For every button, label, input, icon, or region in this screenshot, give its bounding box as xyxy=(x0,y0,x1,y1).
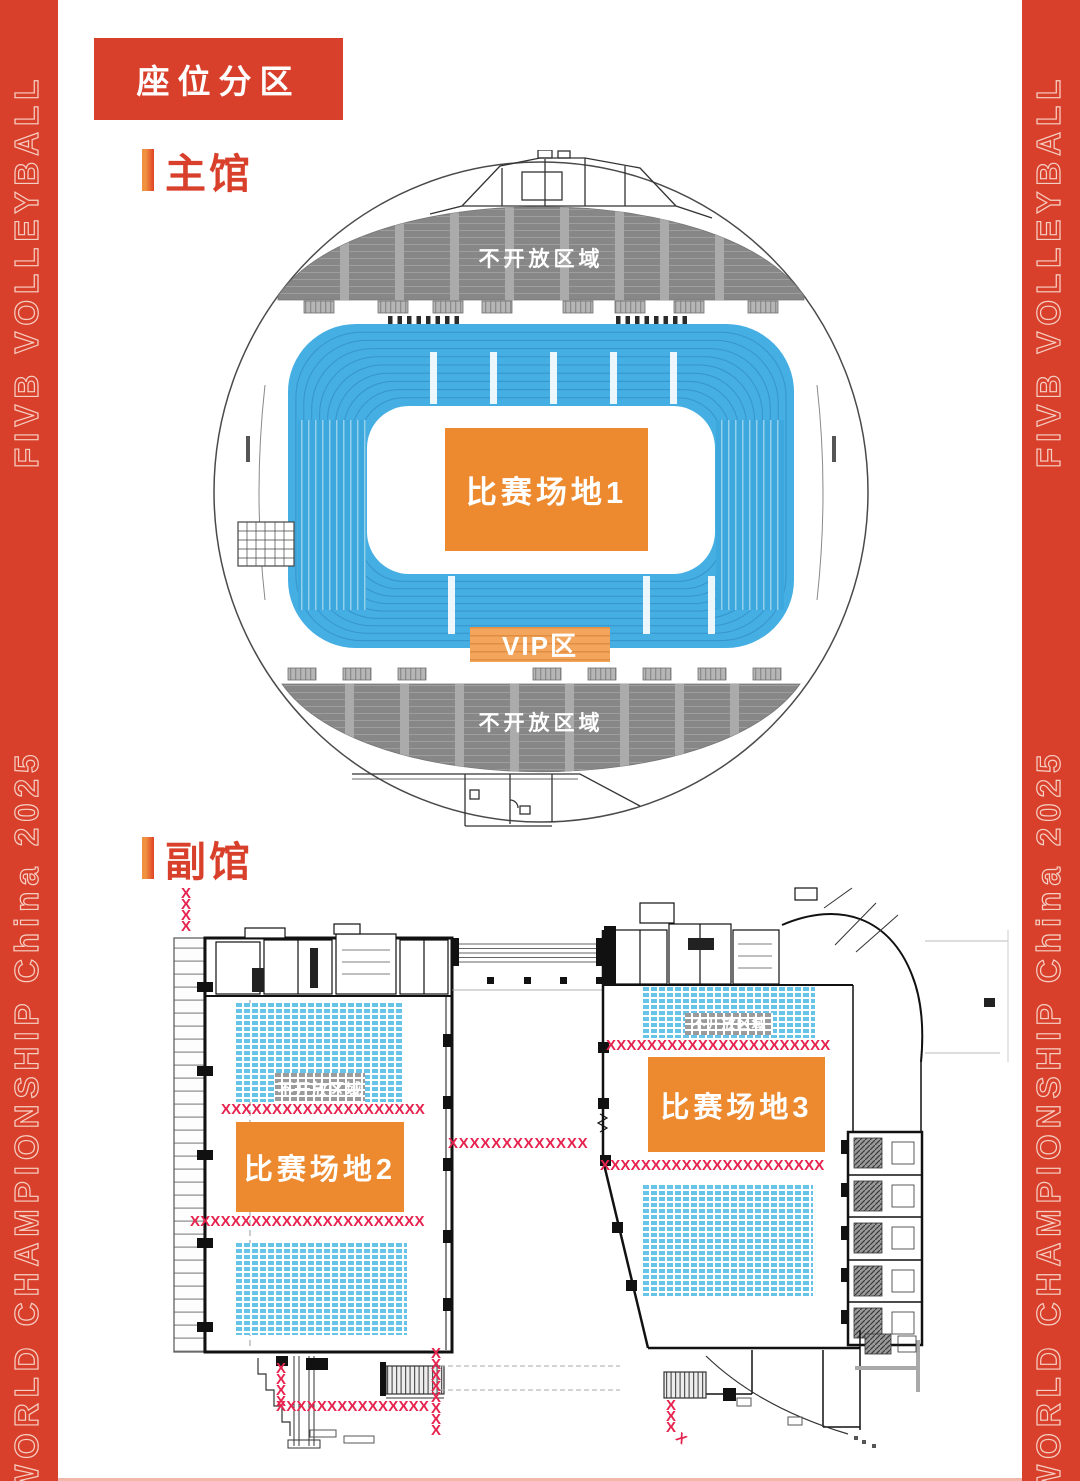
closed-area-top-label: 不开放区域 xyxy=(421,243,661,273)
barrier-left-row-bottom: XXXXXXXXXXXXXXXXXXXXXXX xyxy=(190,1214,425,1230)
banner-text-fivb-volleyball: FIVB VOLLEYBALL xyxy=(1030,0,1068,468)
vip-zone-label: VIP区 xyxy=(502,626,578,663)
court3-label: 比赛场地3 xyxy=(660,1084,812,1126)
heading-accent-bar xyxy=(142,149,154,191)
right-banner-strip: FIVB VOLLEYBALL WORLD CHAMPIONSHIP China… xyxy=(1022,0,1080,1481)
bridge xyxy=(452,938,603,990)
banner-text-world-championship: WORLD CHAMPIONSHIP China 2025 xyxy=(1030,586,1068,1481)
court2-block: 比赛场地2 xyxy=(236,1122,404,1212)
seating-block-right-bottom xyxy=(643,1185,813,1296)
seating-zones-poster: FIVB VOLLEYBALL WORLD CHAMPIONSHIP China… xyxy=(0,0,1080,1481)
closed-area-right-label: 不开放区域 xyxy=(685,1013,773,1035)
barrier-bottom-right-column: XXX xyxy=(666,1400,680,1433)
left-banner-strip: FIVB VOLLEYBALL WORLD CHAMPIONSHIP China… xyxy=(0,0,58,1481)
barrier-left-row-top: XXXXXXXXXXXXXXXXXXXX xyxy=(221,1102,425,1118)
court3-block: 比赛场地3 xyxy=(648,1057,825,1152)
closed-area-bottom-label: 不开放区域 xyxy=(421,707,661,737)
banner-text-world-championship: WORLD CHAMPIONSHIP China 2025 xyxy=(8,586,46,1481)
court2-label: 比赛场地2 xyxy=(244,1146,396,1188)
court1-label: 比赛场地1 xyxy=(466,467,627,512)
barrier-bottom-row: XXXXXXXXXXXXXXX xyxy=(276,1399,429,1415)
closed-area-left-label: 不开放区域 xyxy=(275,1073,365,1102)
heading-accent-bar xyxy=(142,837,154,879)
window-grid xyxy=(238,522,294,566)
barrier-bottom-mid-column: XXXXXXXX xyxy=(431,1348,445,1436)
barrier-right-row-mid: XXXXXXXXXXXXXXXXXXXXXX xyxy=(600,1158,825,1174)
barrier-corridor-row: XXXXXXXXXXXXX xyxy=(448,1136,588,1152)
stand-entries-bottom xyxy=(288,668,781,680)
page-title: 座位分区 xyxy=(94,38,343,120)
banner-text-fivb-volleyball: FIVB VOLLEYBALL xyxy=(8,0,46,468)
court1-block: 比赛场地1 xyxy=(445,428,648,551)
seating-block-left-bottom xyxy=(236,1243,407,1335)
barrier-top-left-column: XXXX xyxy=(181,888,195,932)
aux-hall-heading: 副馆 xyxy=(142,834,253,882)
barrier-right-row-top: XXXXXXXXXXXXXXXXXXXXXX xyxy=(606,1038,831,1054)
aux-hall-heading-label: 副馆 xyxy=(165,828,253,888)
vip-zone-block: VIP区 xyxy=(470,627,610,662)
